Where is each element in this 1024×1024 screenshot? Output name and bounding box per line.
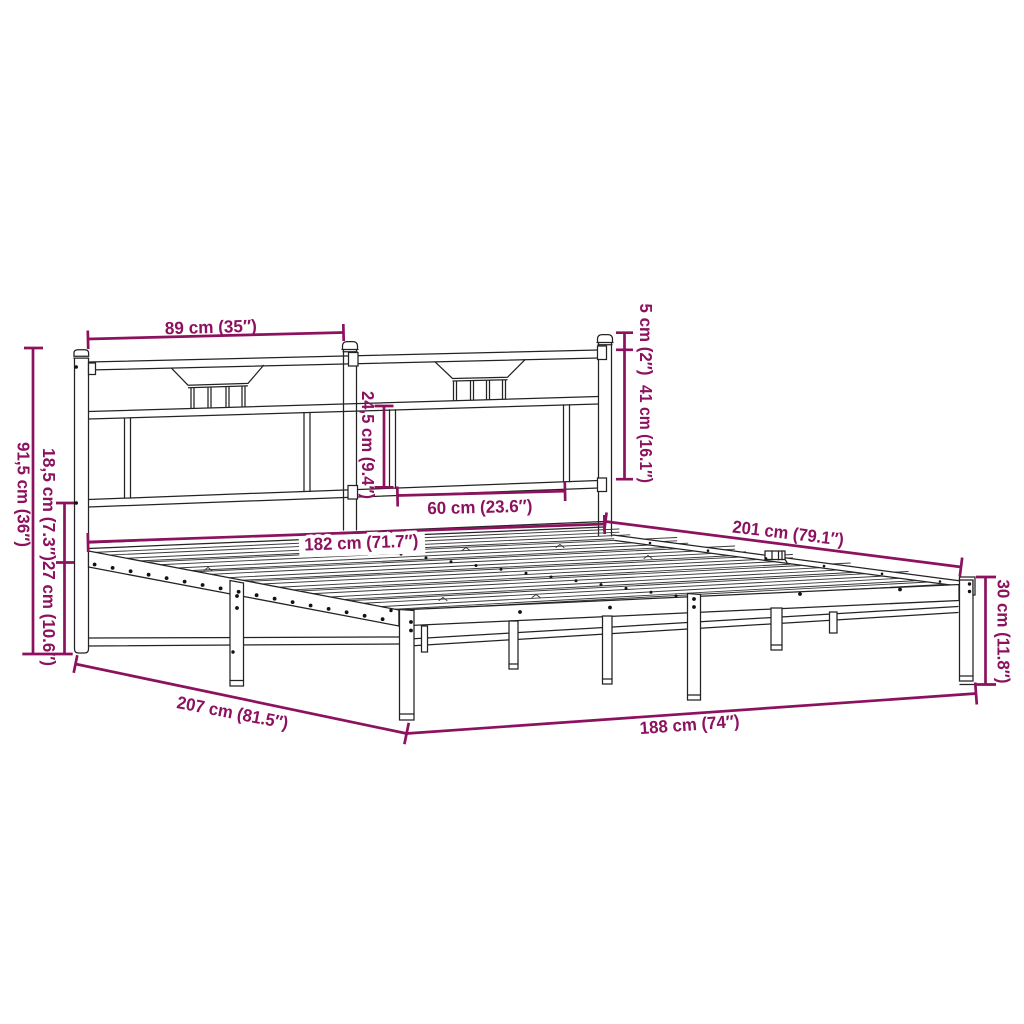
svg-text:41 cm (16.1″): 41 cm (16.1″) [636,385,656,483]
svg-text:60 cm (23.6″): 60 cm (23.6″) [427,496,532,519]
svg-text:27 cm (10.6″): 27 cm (10.6″) [39,561,59,666]
svg-text:89 cm (35″): 89 cm (35″) [165,316,258,339]
svg-text:30 cm (11.8″): 30 cm (11.8″) [994,580,1014,684]
svg-text:18,5 cm (7.3″): 18,5 cm (7.3″) [39,448,59,561]
svg-text:182 cm (71.7″): 182 cm (71.7″) [304,531,419,555]
svg-text:5 cm (2″): 5 cm (2″) [636,304,656,376]
svg-text:24,5 cm (9.4″): 24,5 cm (9.4″) [358,391,378,499]
svg-text:91,5 cm (36″): 91,5 cm (36″) [14,442,34,547]
